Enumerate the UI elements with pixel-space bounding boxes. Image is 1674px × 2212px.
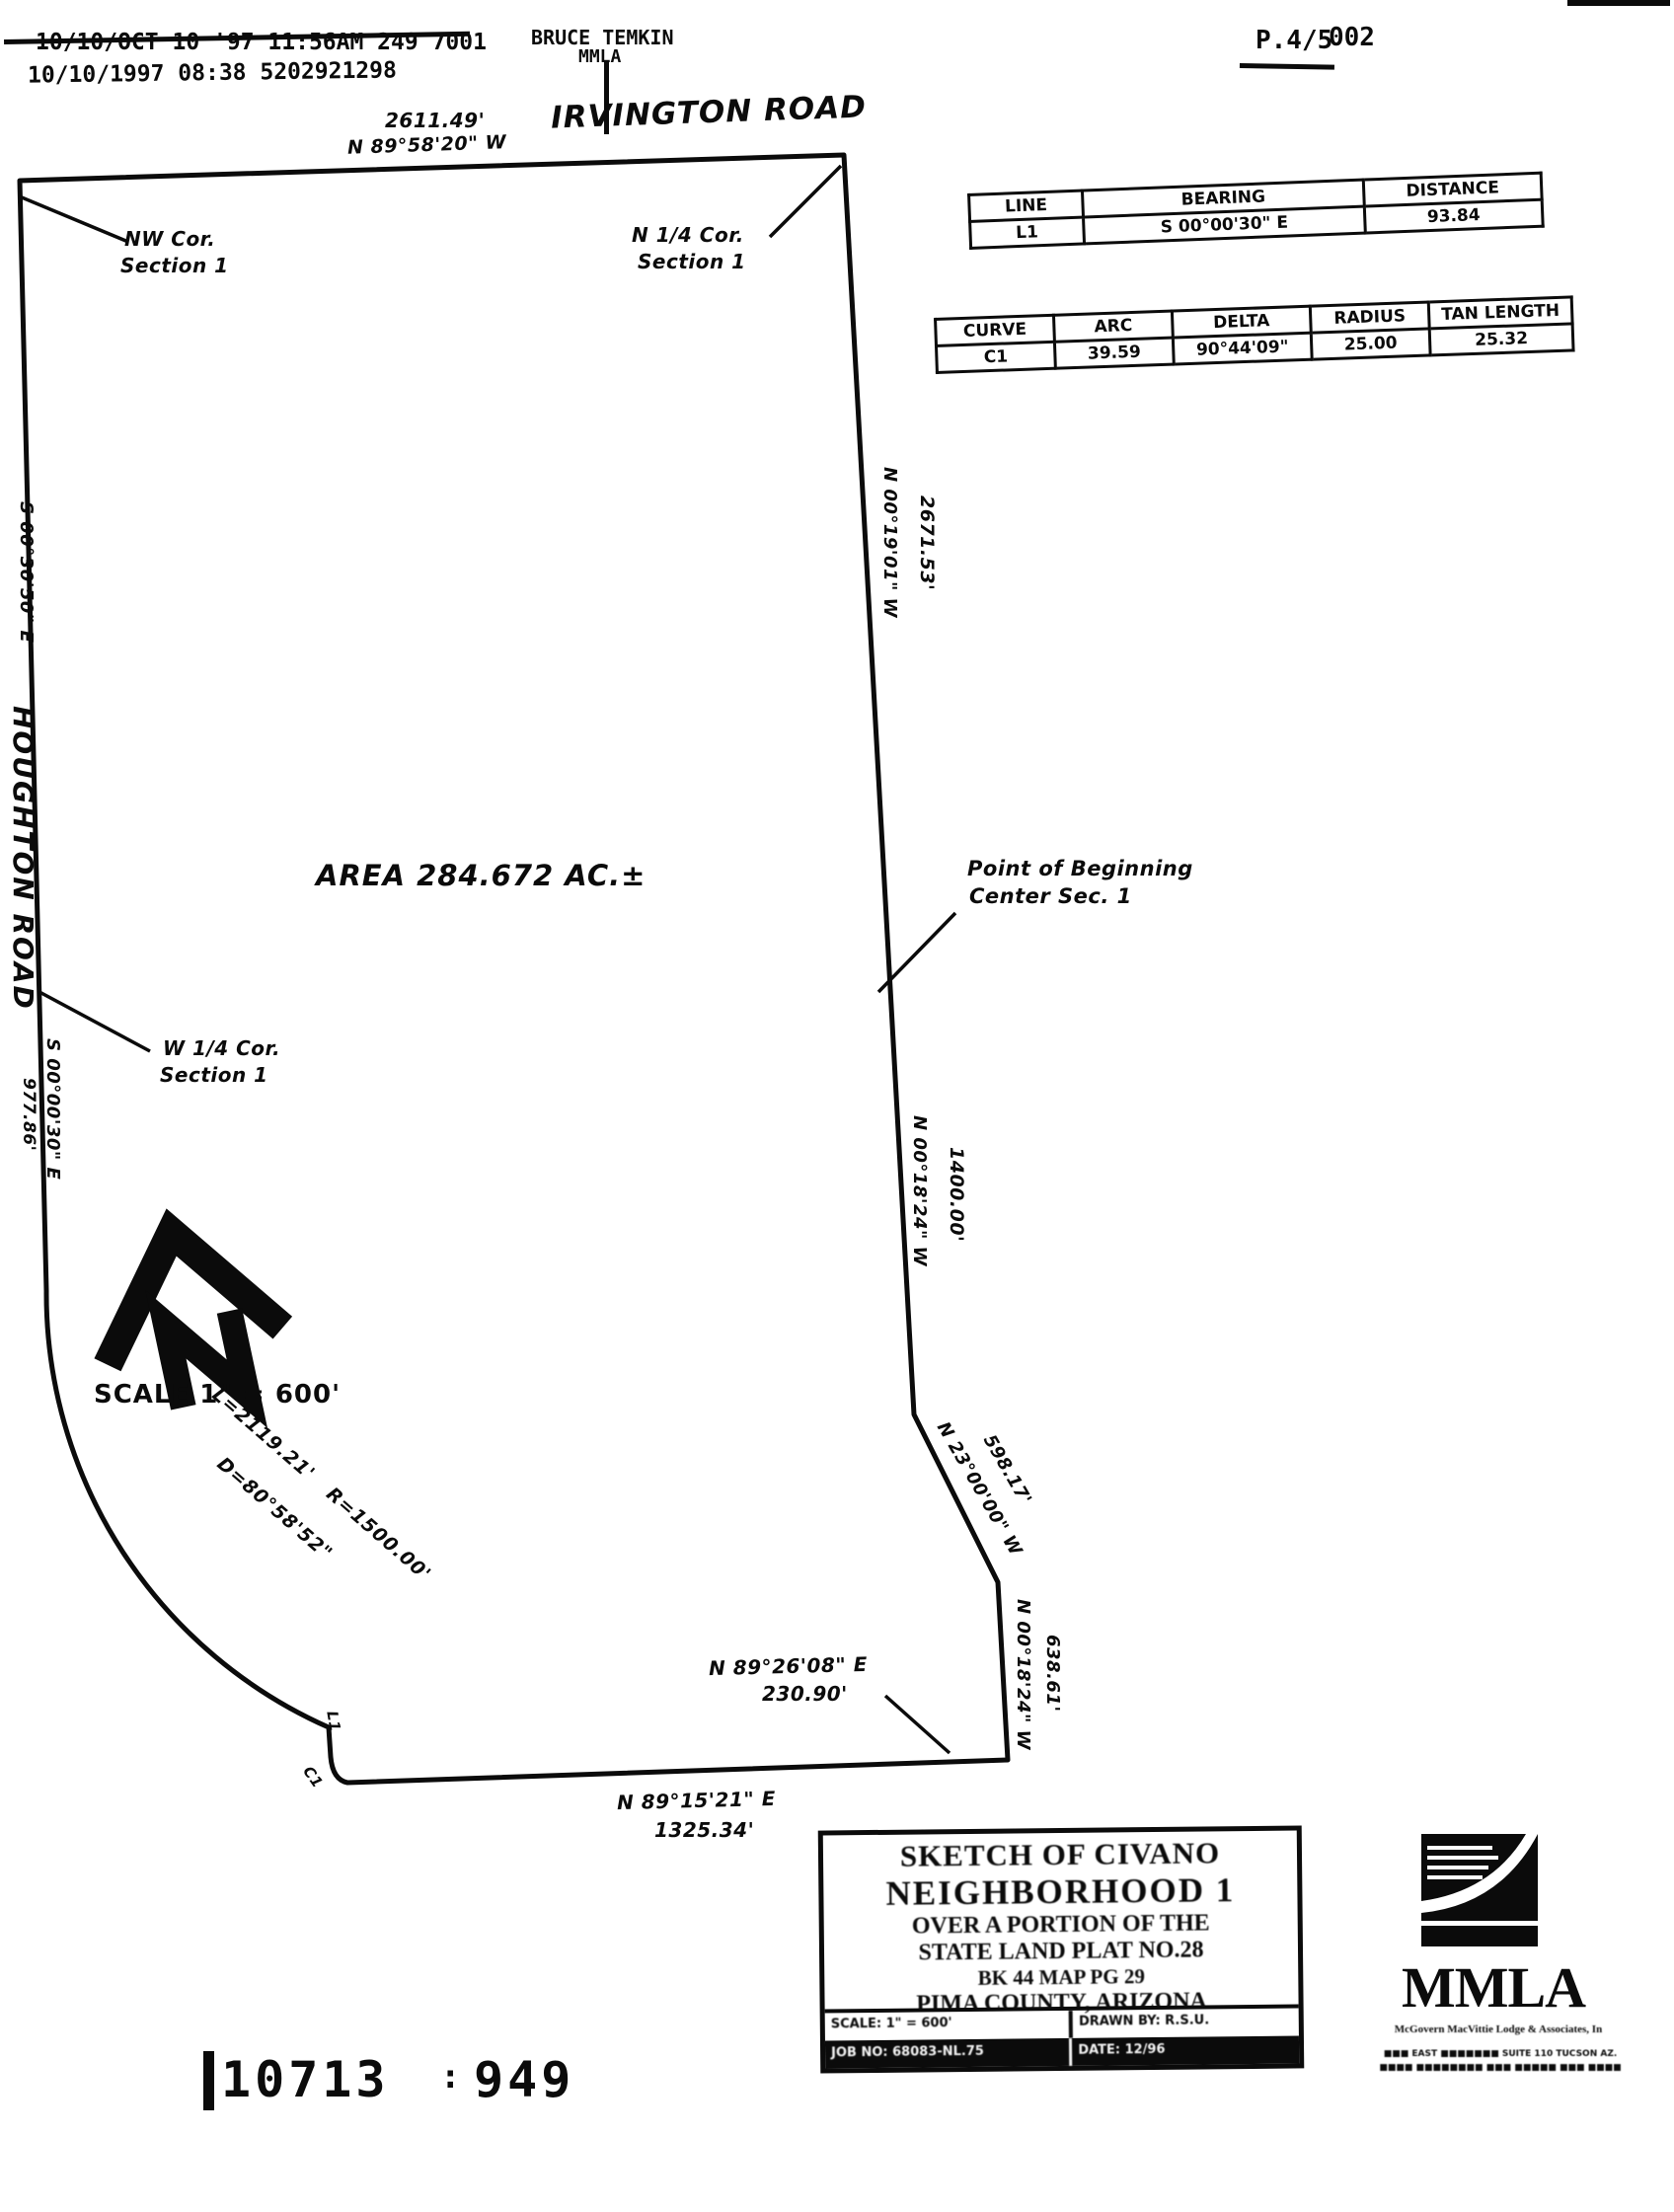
area-label: AREA 284.672 AC.±	[316, 859, 646, 892]
south-bearing-1-label: N 89°26'08" E	[709, 1652, 868, 1680]
south-distance-1-label: 230.90'	[762, 1682, 848, 1706]
title-job-cell: JOB NO: 68083-NL.75	[825, 2038, 1072, 2069]
curve-c1-delta: 90°44'09"	[1173, 333, 1312, 364]
top-distance-label: 2611.49'	[385, 109, 485, 132]
line-l1-id: L1	[970, 217, 1085, 248]
footer-artifact-bar	[203, 2051, 214, 2110]
nw-corner-label-2: Section 1	[120, 254, 229, 277]
curve-table-header-curve: CURVE	[936, 315, 1055, 345]
fax-timestamp-line2: 10/10/1997 08:38 5202921298	[28, 57, 397, 88]
east-bearing-lower-label: N 00°18'24" W	[1013, 1599, 1033, 1750]
leader-nw-corner	[22, 197, 128, 242]
fax-page-stamp: 002	[1329, 23, 1375, 52]
east-distance-mid-label: 1400.00'	[946, 1147, 967, 1242]
west-bearing-lower-label: S 00°00'30" E	[42, 1038, 63, 1180]
curve-c1-tan: 25.32	[1429, 324, 1573, 355]
fax-page-number: P.4/5	[1255, 26, 1332, 55]
title-block: SKETCH OF CIVANO NEIGHBORHOOD 1 OVER A P…	[818, 1825, 1305, 2073]
east-distance-upper-label: 2671.53'	[916, 496, 938, 590]
pob-label-1: Point of Beginning	[967, 857, 1193, 880]
east-distance-lower-label: 638.61'	[1042, 1635, 1063, 1712]
curve-table-header-radius: RADIUS	[1310, 302, 1429, 333]
ref-l1-label: L1	[323, 1710, 343, 1733]
parcel-boundary	[20, 155, 1008, 1783]
n-quarter-label-2: Section 1	[638, 250, 746, 273]
title-line-2: NEIGHBORHOOD 1	[823, 1869, 1297, 1914]
line-l1-distance: 93.84	[1364, 199, 1543, 233]
mmla-address-1: ■■■ EAST ■■■■■■■ SUITE 110 TUCSON AZ.	[1352, 2049, 1648, 2059]
houghton-road-label: HOUGHTON ROAD	[7, 706, 39, 1011]
scan-artifact-corner	[1567, 0, 1670, 6]
east-bearing-mid-label: N 00°18'24" W	[909, 1115, 930, 1266]
footer-separator: :	[440, 2057, 460, 2097]
title-block-row-2: JOB NO: 68083-NL.75 DATE: 12/96	[825, 2035, 1299, 2068]
page-stamp-underline	[1240, 63, 1334, 70]
w-quarter-label-2: Section 1	[160, 1063, 268, 1087]
curve-c1-id: C1	[936, 342, 1055, 372]
scale-note: SCALE 1" = 600'	[94, 1380, 341, 1410]
west-bearing-upper-label: S 00°30'50" E	[16, 501, 37, 643]
footer-number-2: 949	[474, 2051, 574, 2108]
fax-timestamp-line1: 10/10/OCT 10 '97 11:56AM 249 7001	[36, 30, 487, 55]
curve-table-header-arc: ARC	[1053, 311, 1173, 342]
curve-c1-radius: 25.00	[1311, 329, 1430, 359]
leader-n-quarter-corner	[770, 166, 841, 237]
east-bearing-upper-label: N 00°19'01" W	[879, 467, 900, 618]
pob-label-2: Center Sec. 1	[969, 884, 1132, 908]
nw-corner-label-1: NW Cor.	[124, 227, 215, 251]
mmla-address-2: ■■■■ ■■■■■■■■ ■■■ ■■■■■ ■■■ ■■■■	[1352, 2063, 1648, 2073]
footer-number-1: 10713	[221, 2051, 390, 2108]
w-quarter-label-1: W 1/4 Cor.	[163, 1036, 280, 1060]
title-date-cell: DATE: 12/96	[1072, 2035, 1299, 2065]
title-scale-cell: SCALE: 1" = 600'	[825, 2011, 1073, 2041]
mmla-tagline: McGovern MacVittie Lodge & Associates, I…	[1360, 2023, 1636, 2035]
n-quarter-label-1: N 1/4 Cor.	[632, 223, 744, 247]
mmla-logo-mark	[1421, 1834, 1538, 1946]
west-distance-lower-label: 977.86'	[19, 1078, 38, 1151]
title-line-1: SKETCH OF CIVANO	[823, 1834, 1297, 1874]
curve-c1-arc: 39.59	[1054, 338, 1174, 368]
fax-document-page: 10/10/OCT 10 '97 11:56AM 249 7001 10/10/…	[0, 0, 1674, 2212]
south-bearing-2-label: N 89°15'21" E	[617, 1787, 776, 1814]
title-drawnby-cell: DRAWN BY: R.S.U.	[1073, 2008, 1299, 2037]
mmla-wordmark: MMLA	[1370, 1954, 1617, 2021]
fax-sender-org: MMLA	[578, 46, 621, 67]
title-block-row-1: SCALE: 1" = 600' DRAWN BY: R.S.U.	[825, 2004, 1299, 2040]
leader-south-bearing	[885, 1696, 950, 1753]
south-distance-2-label: 1325.34'	[654, 1818, 754, 1842]
